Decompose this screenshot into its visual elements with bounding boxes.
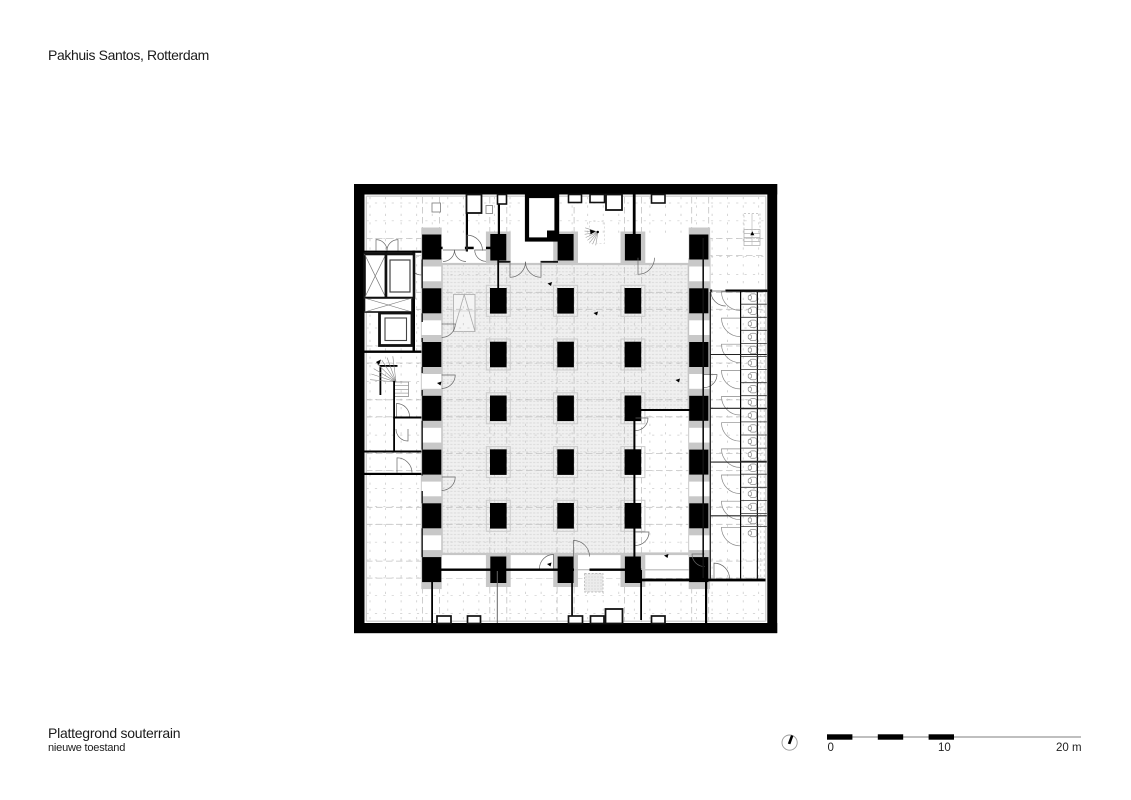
svg-text:0: 0 (828, 742, 834, 754)
svg-text:20 m: 20 m (1056, 742, 1082, 754)
svg-text:10: 10 (938, 742, 951, 754)
